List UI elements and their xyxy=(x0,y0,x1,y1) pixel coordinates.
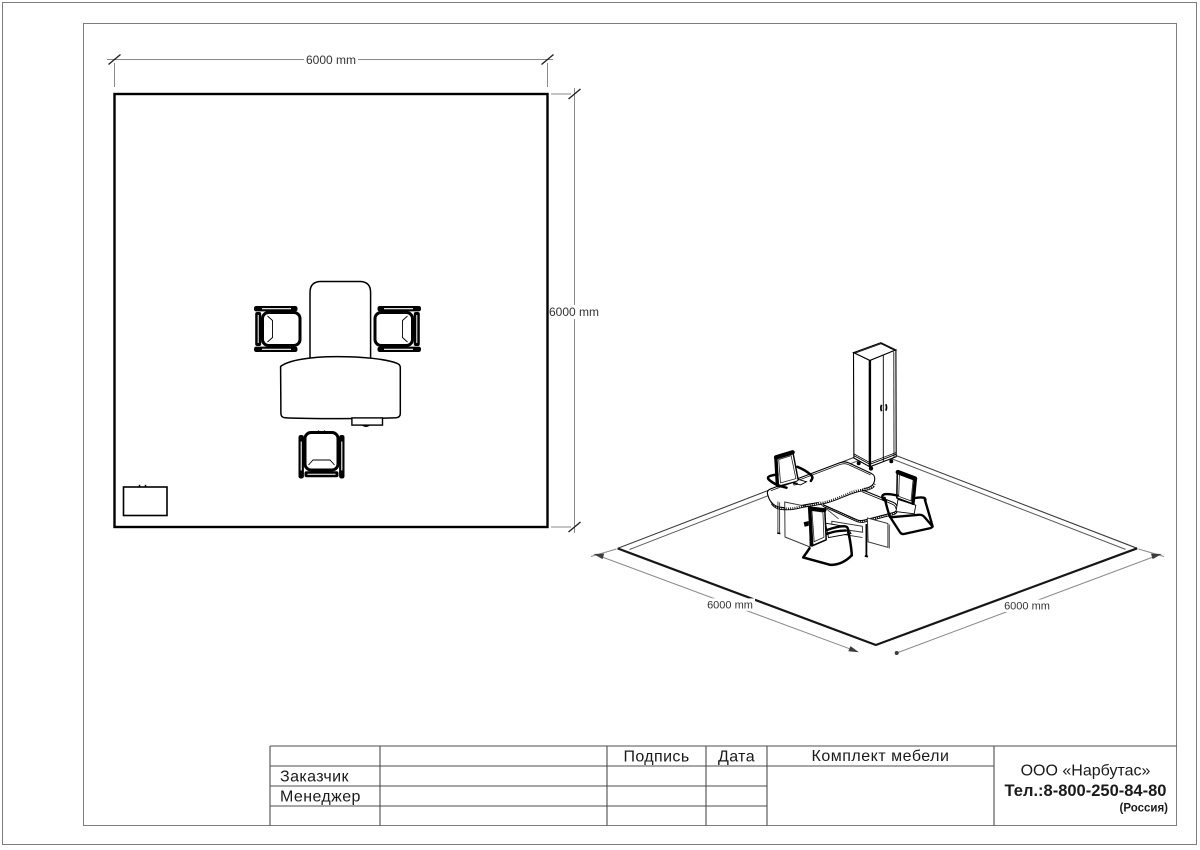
svg-text:ООО «Нарбутас»: ООО «Нарбутас» xyxy=(1021,763,1151,780)
svg-text:Тел.:8-800-250-84-80: Тел.:8-800-250-84-80 xyxy=(1005,782,1167,800)
svg-text:Дата: Дата xyxy=(718,749,755,766)
svg-text:Комплект мебели: Комплект мебели xyxy=(812,748,950,765)
svg-text:Менеджер: Менеджер xyxy=(280,789,361,806)
svg-text:6000 mm: 6000 mm xyxy=(306,53,356,67)
svg-text:(Россия): (Россия) xyxy=(1120,803,1169,815)
svg-text:6000 mm: 6000 mm xyxy=(1004,601,1050,613)
svg-text:Подпись: Подпись xyxy=(623,749,689,766)
svg-text:6000 mm: 6000 mm xyxy=(707,600,753,612)
svg-text:Заказчик: Заказчик xyxy=(280,769,350,786)
svg-text:6000 mm: 6000 mm xyxy=(549,305,599,319)
